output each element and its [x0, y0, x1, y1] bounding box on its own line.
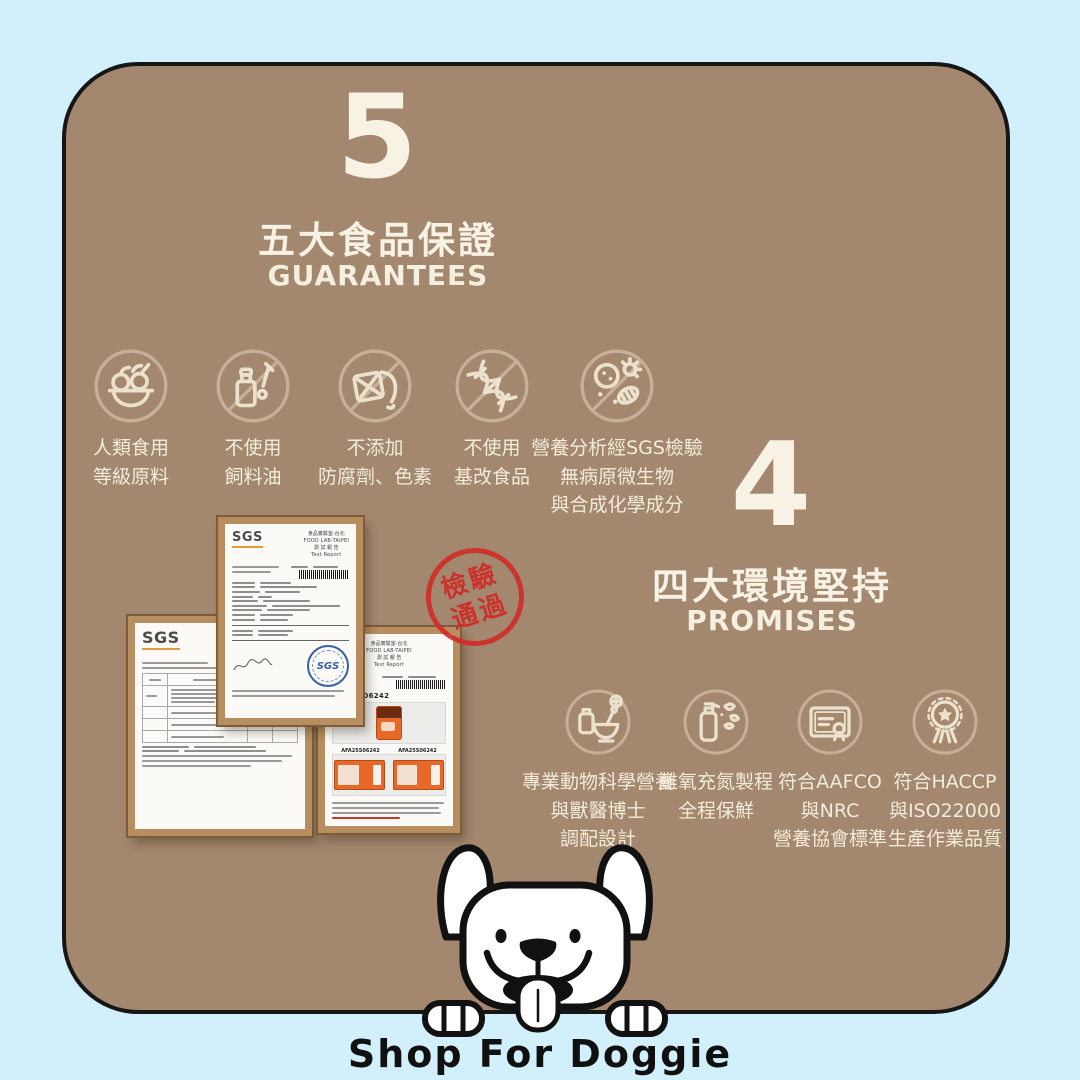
product-package [334, 760, 385, 790]
microbes-icon [580, 349, 654, 423]
guarantees-title-zh: 五大食品保證 [178, 210, 578, 264]
promise-label: 符合HACCP 與ISO22000 生產作業品質 [888, 768, 1002, 854]
guarantees-number: 5 [297, 80, 457, 196]
sgs-logo: SGS [232, 531, 263, 548]
guarantee-item-sgs-tested: 營養分析經SGS檢驗 無病原微生物 與合成化學成分 [522, 349, 712, 520]
guarantee-label: 營養分析經SGS檢驗 無病原微生物 與合成化學成分 [531, 434, 703, 520]
sgs-logo: SGS [142, 630, 180, 650]
promises-title-en: PROMISES [572, 604, 972, 637]
product-pouch [376, 706, 402, 740]
signature [232, 657, 274, 675]
product-package [393, 760, 444, 790]
guarantees-title-en: GUARANTEES [178, 259, 578, 292]
package-photos [332, 754, 446, 796]
poster: 5 五大食品保證 GUARANTEES 人類食用 等級原料 [0, 0, 1080, 1080]
guarantee-label: 不使用 飼料油 [224, 434, 281, 491]
guarantee-label: 不使用 基改食品 [454, 434, 530, 491]
spray-leaves-icon [683, 689, 749, 755]
dropper-bottle-icon [216, 349, 290, 423]
report-header: 食品實驗室-台北 FOOD LAB-TAIPEI 測 試 報 告 Test Re… [366, 641, 412, 669]
promise-label: 符合AAFCO 與NRC 營養協會標準 [773, 768, 887, 854]
barcode [299, 570, 349, 579]
promises-number: 4 [691, 428, 851, 544]
fruit-basket-icon [94, 349, 168, 423]
dna-icon [455, 349, 529, 423]
promise-item-haccp-iso: 符合HACCP 與ISO22000 生產作業品質 [871, 689, 1019, 854]
sgs-round-stamp: SGS [307, 645, 349, 687]
mortar-pestle-icon [565, 689, 631, 755]
certificate-icon [797, 689, 863, 755]
sgs-report-middle: SGS 食品實驗室-台北 FOOD LAB-TAIPEI 測 試 報 告 Tes… [218, 517, 363, 725]
barcode [396, 680, 446, 689]
promises-title-zh: 四大環境堅持 [572, 556, 972, 610]
medal-icon [912, 689, 978, 755]
guarantee-label: 不添加 防腐劑、色素 [318, 434, 432, 491]
report-header: 食品實驗室-台北 FOOD LAB-TAIPEI 測 試 報 告 Test Re… [304, 531, 350, 559]
bulldog-mascot [415, 843, 675, 1078]
guarantee-label: 人類食用 等級原料 [93, 434, 169, 491]
oil-jug-icon [338, 349, 412, 423]
